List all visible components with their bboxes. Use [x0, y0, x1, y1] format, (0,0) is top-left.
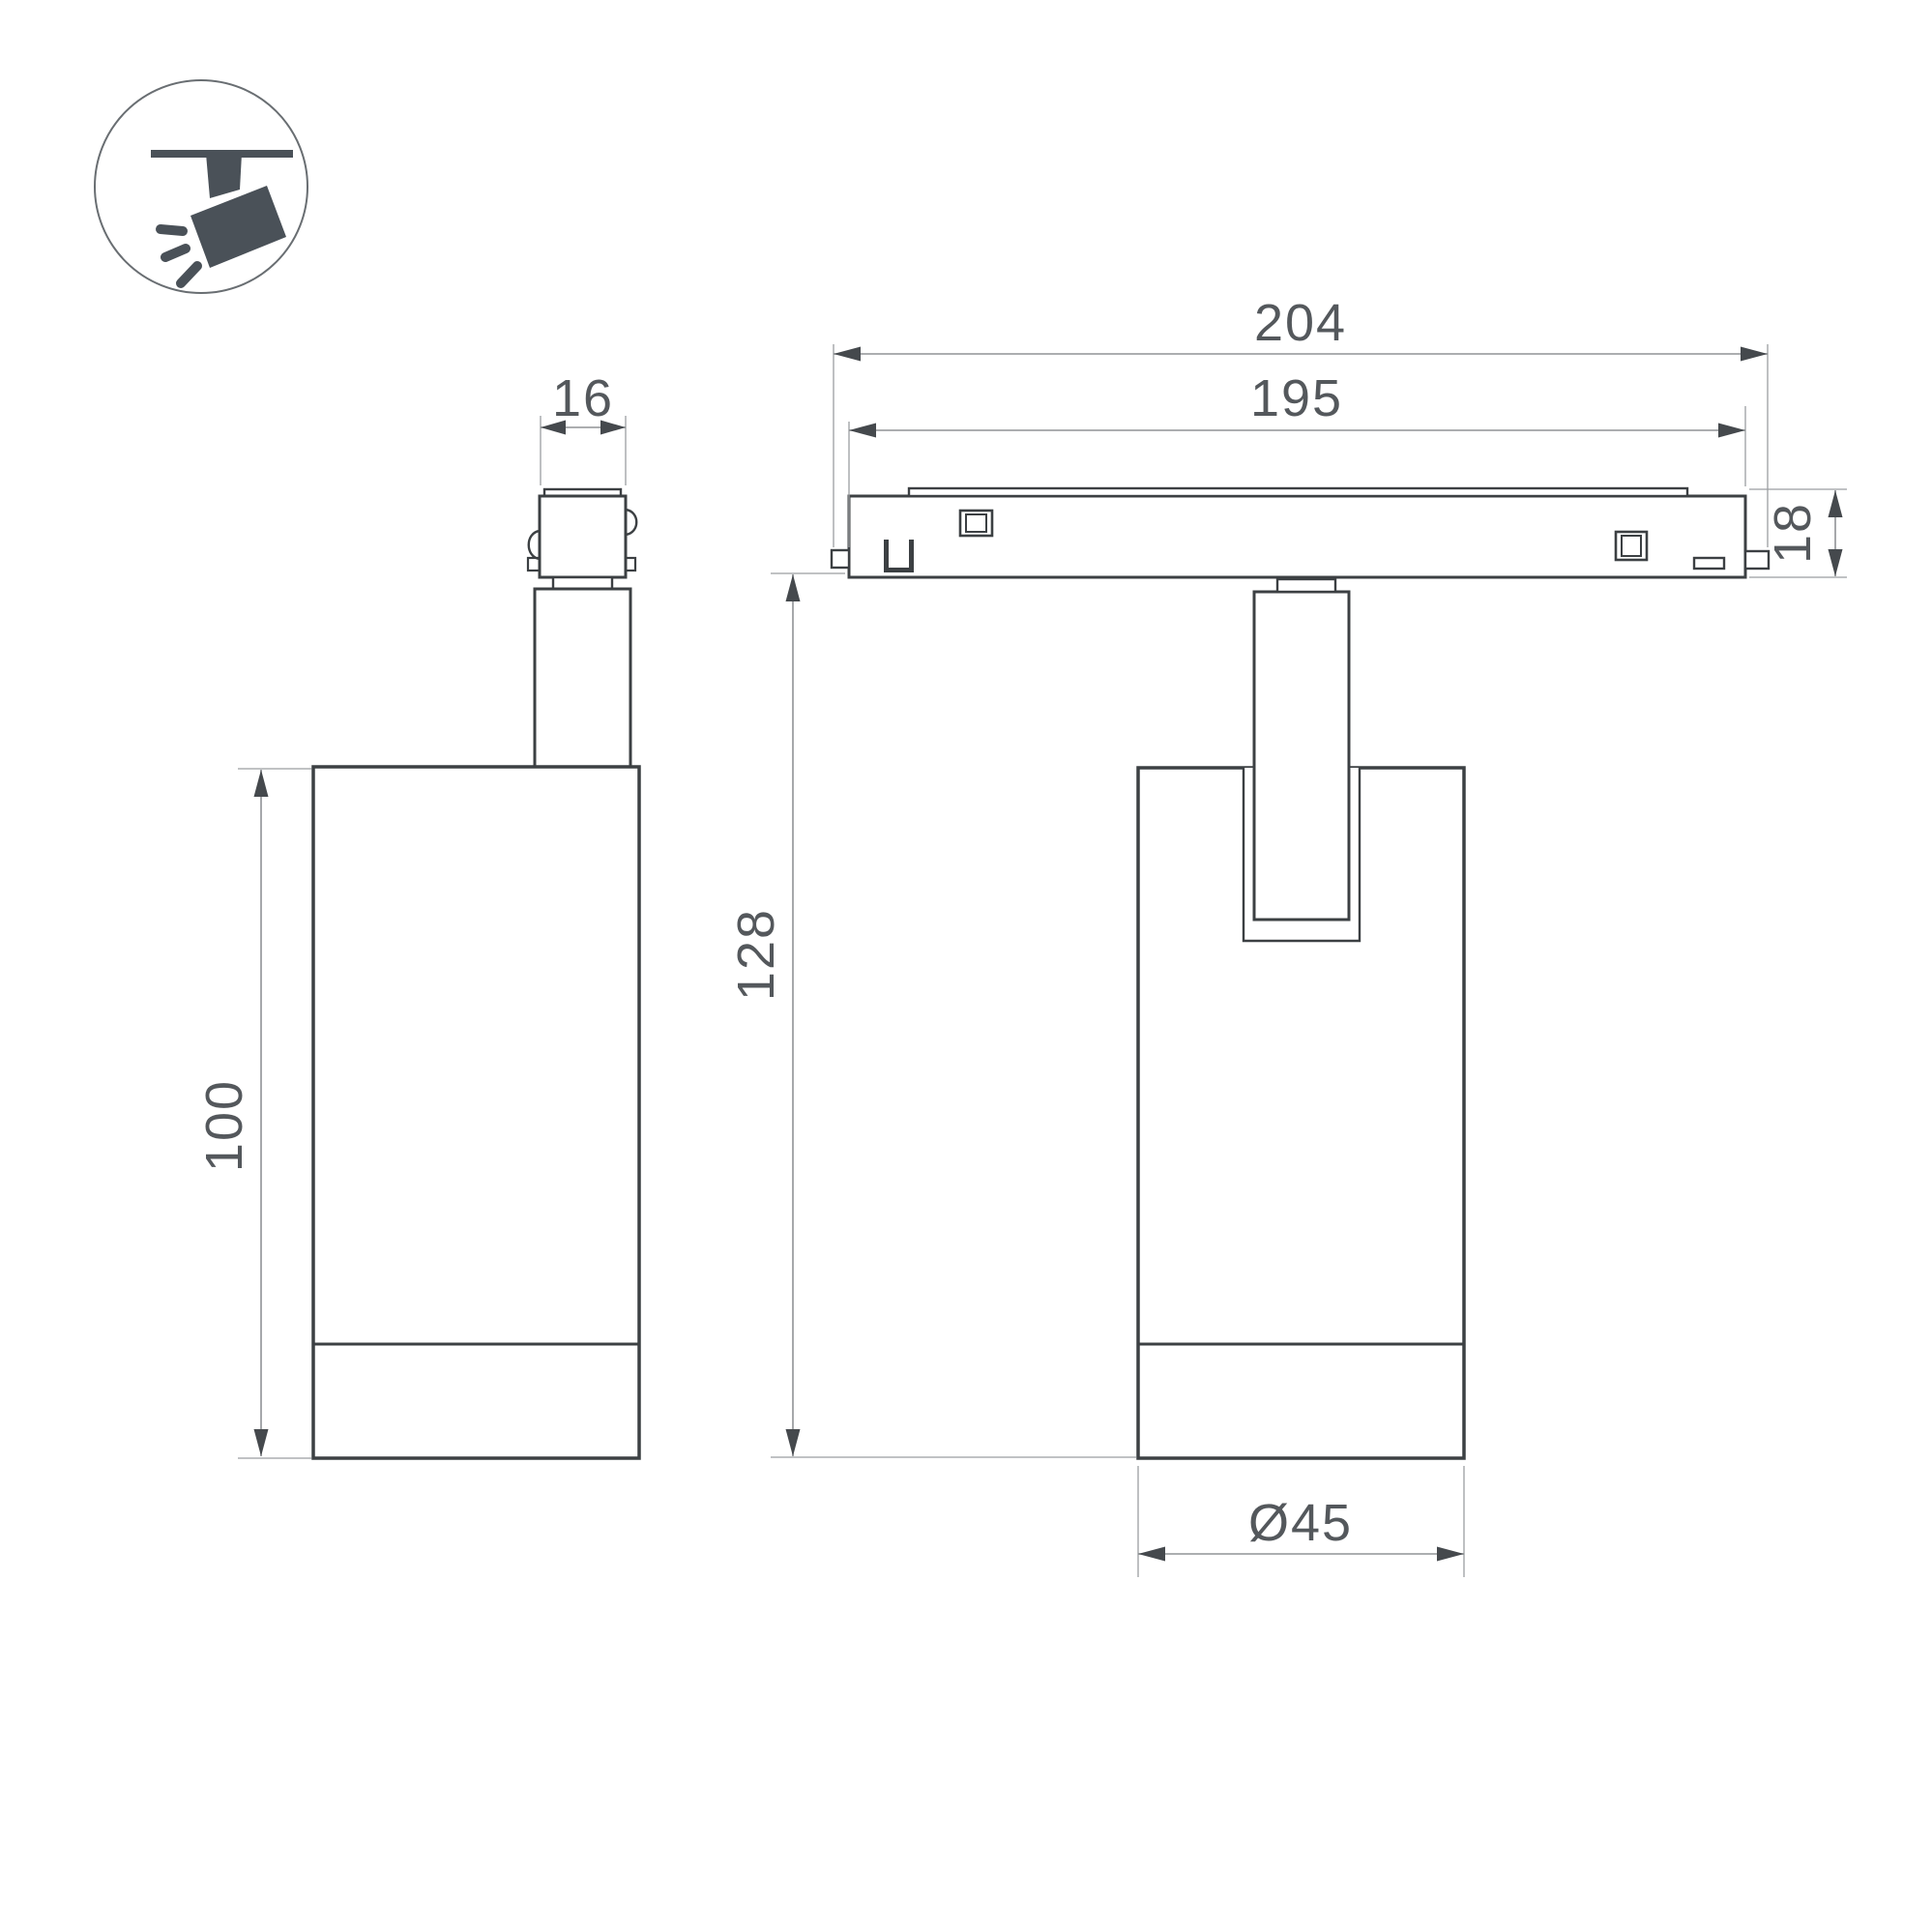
dim-195-arrow-left	[849, 424, 876, 438]
side-adapter-left-clip-hook	[528, 558, 540, 571]
dim-45-arrow-right	[1437, 1547, 1464, 1562]
dim-100-arrow-top	[254, 770, 269, 797]
dim-128-label: 128	[727, 908, 785, 1001]
dim-128: 128	[727, 573, 1136, 1457]
dim-45: Ø45	[1138, 1466, 1464, 1577]
side-adapter-head	[540, 496, 626, 577]
dim-204-arrow-left	[834, 347, 861, 362]
side-view	[313, 489, 639, 1458]
front-view	[832, 488, 1769, 1458]
dim-18: 18	[1749, 489, 1847, 577]
track-top-plate	[909, 488, 1687, 496]
dim-100-arrow-bottom	[254, 1429, 269, 1456]
dimension-drawing-canvas: 204 195 16 18 128	[0, 0, 1932, 1932]
side-stem	[535, 589, 630, 767]
side-body	[313, 767, 639, 1458]
dim-204-arrow-right	[1741, 347, 1768, 362]
dim-100: 100	[195, 769, 311, 1458]
dim-45-label: Ø45	[1248, 1494, 1353, 1552]
front-stem-connector-tab	[1277, 579, 1335, 592]
dim-195-label: 195	[1250, 369, 1343, 427]
dim-100-label: 100	[195, 1079, 253, 1172]
icon-light-ray-1	[161, 229, 183, 231]
front-stem	[1254, 592, 1349, 920]
side-adapter-neck	[553, 577, 612, 589]
dim-16-label: 16	[552, 369, 614, 427]
dim-16: 16	[541, 369, 626, 485]
dim-204-label: 204	[1254, 294, 1347, 352]
dim-128-arrow-bottom	[786, 1429, 801, 1456]
icon-circle	[95, 80, 307, 293]
track-left-end-tab	[832, 550, 849, 568]
track-spotlight-icon	[95, 80, 307, 293]
dim-128-arrow-top	[786, 574, 801, 601]
dim-45-arrow-left	[1138, 1547, 1165, 1562]
dim-18-label: 18	[1764, 502, 1822, 564]
side-adapter-left-clip-arc	[529, 531, 540, 559]
dim-18-arrow-bottom	[1829, 549, 1843, 576]
technical-drawing: 204 195 16 18 128	[0, 0, 1932, 1932]
side-adapter-right-clip-arc	[626, 510, 636, 535]
dim-18-arrow-top	[1829, 490, 1843, 517]
dim-195-arrow-right	[1718, 424, 1745, 438]
